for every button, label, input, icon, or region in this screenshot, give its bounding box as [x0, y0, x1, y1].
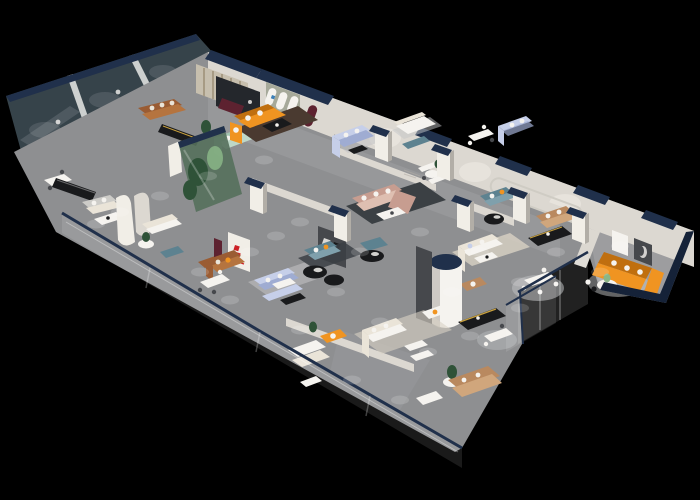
- column-cap: [430, 254, 462, 270]
- black-round-table: [484, 214, 504, 225]
- floorplan-render: [0, 0, 700, 500]
- black-oval-table: [324, 275, 344, 286]
- isometric-showroom-scene: [0, 0, 700, 500]
- black-oval-table: [303, 266, 327, 279]
